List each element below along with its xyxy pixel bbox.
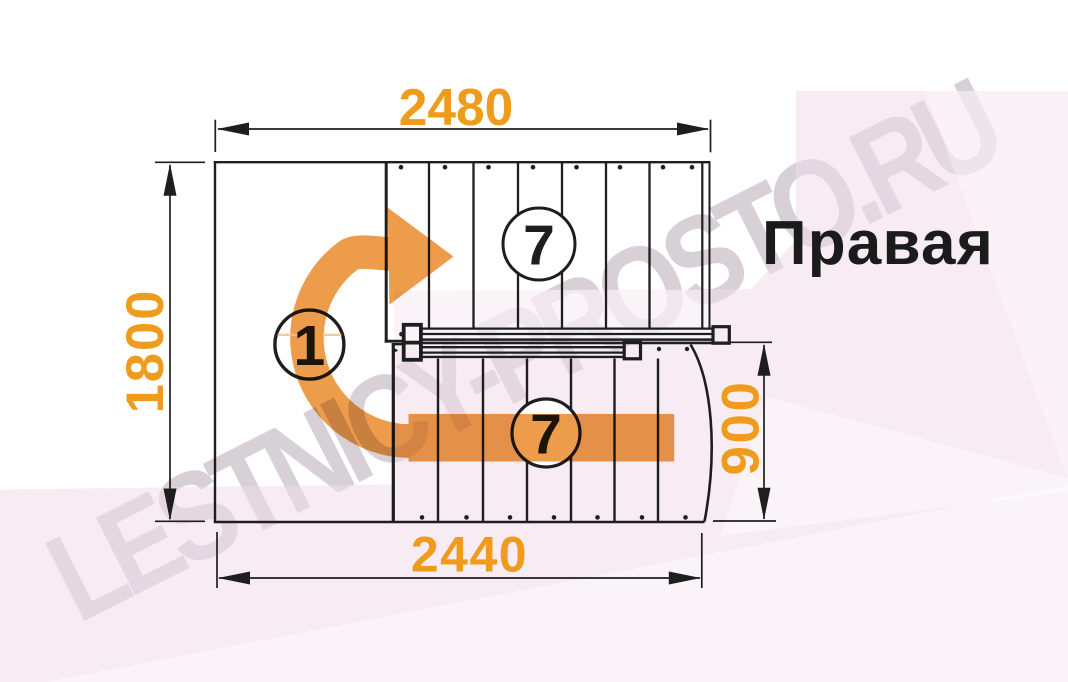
svg-text:Правая: Правая: [762, 209, 994, 278]
svg-text:2440: 2440: [411, 527, 528, 583]
svg-text:2480: 2480: [399, 78, 514, 136]
svg-text:7: 7: [523, 214, 555, 278]
svg-text:900: 900: [712, 380, 771, 476]
svg-text:1800: 1800: [116, 289, 175, 414]
